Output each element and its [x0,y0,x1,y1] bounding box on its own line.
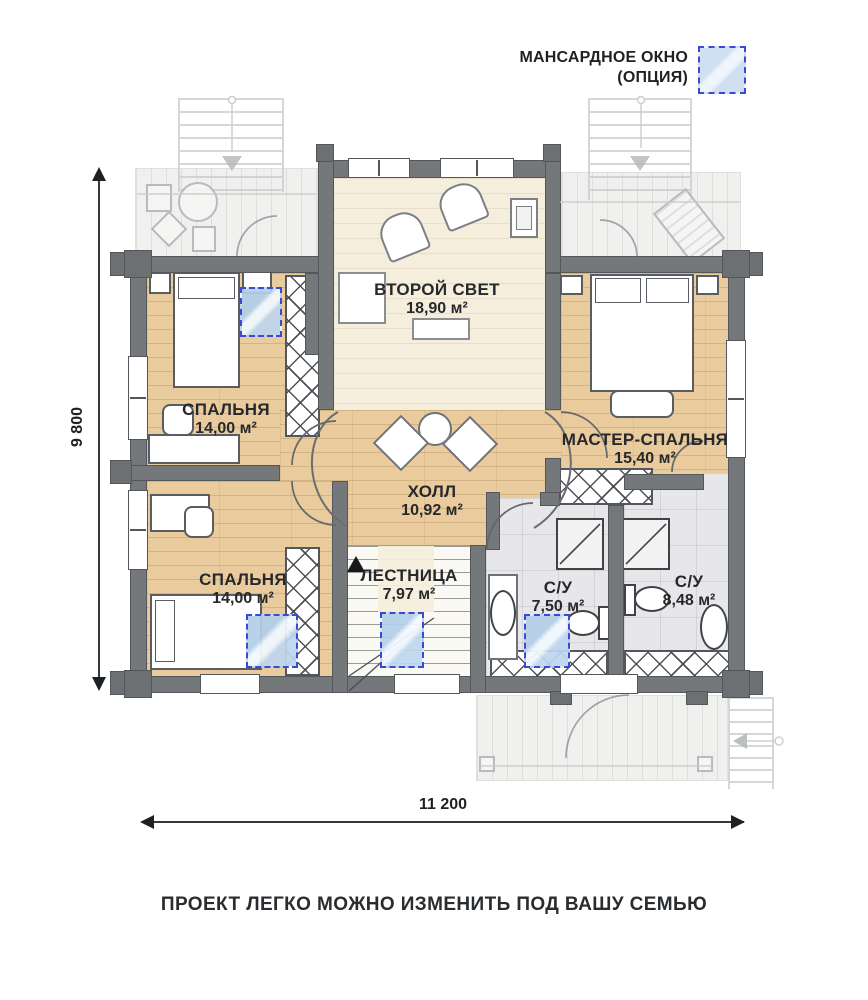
tv-console-inner [516,206,532,230]
dimension-arrow [92,677,106,691]
wall [130,256,334,273]
wall [470,545,486,693]
dimension-line-vertical [98,172,100,686]
terrace-bottom-floor [476,695,728,781]
nightstand [149,272,171,294]
shower [622,518,670,570]
dimension-label-vertical: 9 800 [69,382,87,472]
room-name: ХОЛЛ [401,482,463,502]
legend-line2: (ОПЦИЯ) [400,68,688,88]
pillow [178,277,235,299]
log-end [543,144,561,162]
dimension-arrow [140,815,154,829]
log-corner [722,250,750,278]
floor-plan-canvas: МАНСАРДНОЕ ОКНО (ОПЦИЯ) [0,0,868,1000]
room-area: 14,00 м² [182,420,270,439]
dimension-label-horizontal: 11 200 [393,796,493,814]
dimension-arrow [92,167,106,181]
window-mullion [378,160,380,176]
room-label-master-bedroom: МАСТЕР-СПАЛЬНЯ 15,40 м² [562,430,728,469]
log-corner [722,670,750,698]
log-end [686,691,708,705]
room-name: ВТОРОЙ СВЕТ [374,280,500,300]
room-name: С/У [532,578,585,598]
room-label-bathroom-small: С/У 7,50 м² [532,578,585,617]
nightstand [560,275,583,295]
dimension-line-horizontal [142,821,744,823]
window [200,674,260,694]
wall [318,160,334,410]
room-area: 18,90 м² [374,300,500,319]
room-label-bedroom-top: СПАЛЬНЯ 14,00 м² [182,400,270,439]
log-corner [124,670,152,698]
exterior-stairs-top-right [588,98,692,200]
terrace-post [479,756,495,772]
mansard-window [380,612,424,668]
log-end [316,144,334,162]
room-area: 14,00 м² [199,590,287,609]
terrace-door-threshold [560,674,638,694]
wall [608,505,624,676]
stairs-direction-arrow-icon [630,156,650,171]
window-mullion [476,160,478,176]
pillow [646,278,689,303]
stairs-direction-arrow-icon [222,156,242,171]
pillow [155,600,175,662]
room-name: СПАЛЬНЯ [182,400,270,420]
room-area: 10,92 м² [401,502,463,521]
room-label-bedroom-bottom: СПАЛЬНЯ 14,00 м² [199,570,287,609]
window-mullion [728,398,744,400]
bed-bench [610,390,674,418]
room-label-bathroom-large: С/У 8,48 м² [663,572,716,611]
room-name: СПАЛЬНЯ [199,570,287,590]
wall [332,481,348,693]
flue [305,273,319,355]
window [394,674,460,694]
room-area: 7,50 м² [532,598,585,617]
terrace-chair [146,184,172,212]
wall [486,492,500,550]
wall [540,492,560,506]
stairs-direction-arrow-icon [733,733,747,749]
pillow [595,278,641,303]
shower [556,518,604,570]
legend-line1: МАНСАРДНОЕ ОКНО [400,48,688,68]
log-corner [124,250,152,278]
mansard-window-icon [698,46,746,94]
room-label-hall: ХОЛЛ 10,92 м² [401,482,463,521]
legend-text: МАНСАРДНОЕ ОКНО (ОПЦИЯ) [400,48,688,88]
room-area: 8,48 м² [663,592,716,611]
nightstand [696,275,719,295]
terrace-post [697,756,713,772]
room-name: С/У [663,572,716,592]
exterior-stairs-top-left [178,98,284,192]
sink [490,590,516,636]
wall [548,256,745,273]
slogan: ПРОЕКТ ЛЕГКО МОЖНО ИЗМЕНИТЬ ПОД ВАШУ СЕМ… [0,894,868,916]
mansard-window [246,614,298,668]
wall [728,256,745,693]
mansard-window [524,614,570,668]
room-name: ЛЕСТНИЦА [360,566,457,586]
room-label-staircase: ЛЕСТНИЦА 7,97 м² [360,566,457,605]
wall [545,273,561,410]
room-label-second-light: ВТОРОЙ СВЕТ 18,90 м² [374,280,500,319]
desk-chair [184,506,214,538]
terrace-chair [192,226,216,252]
dimension-arrow [731,815,745,829]
room-name: МАСТЕР-СПАЛЬНЯ [562,430,728,450]
wall [130,465,280,481]
mansard-window [240,287,282,337]
room-area: 7,97 м² [360,586,457,605]
log-end [110,460,132,484]
coffee-table [412,318,470,340]
terrace-table [178,182,218,222]
window-mullion [130,529,146,531]
wall [624,474,704,490]
window-mullion [130,397,146,399]
room-area: 15,40 м² [562,450,728,469]
wall [545,160,561,273]
